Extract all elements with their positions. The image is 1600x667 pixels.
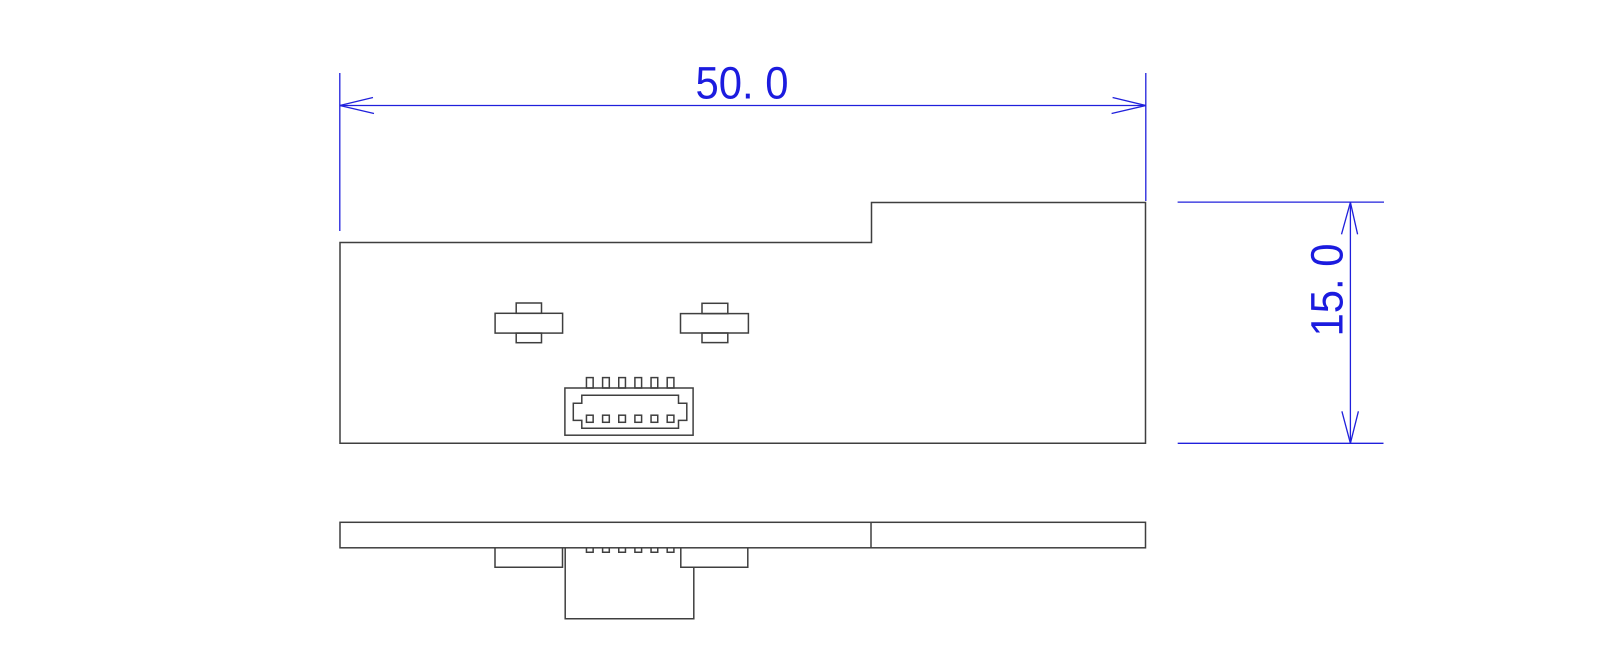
svg-text:15. 0: 15. 0 [1302,244,1353,337]
svg-text:50. 0: 50. 0 [696,58,789,109]
